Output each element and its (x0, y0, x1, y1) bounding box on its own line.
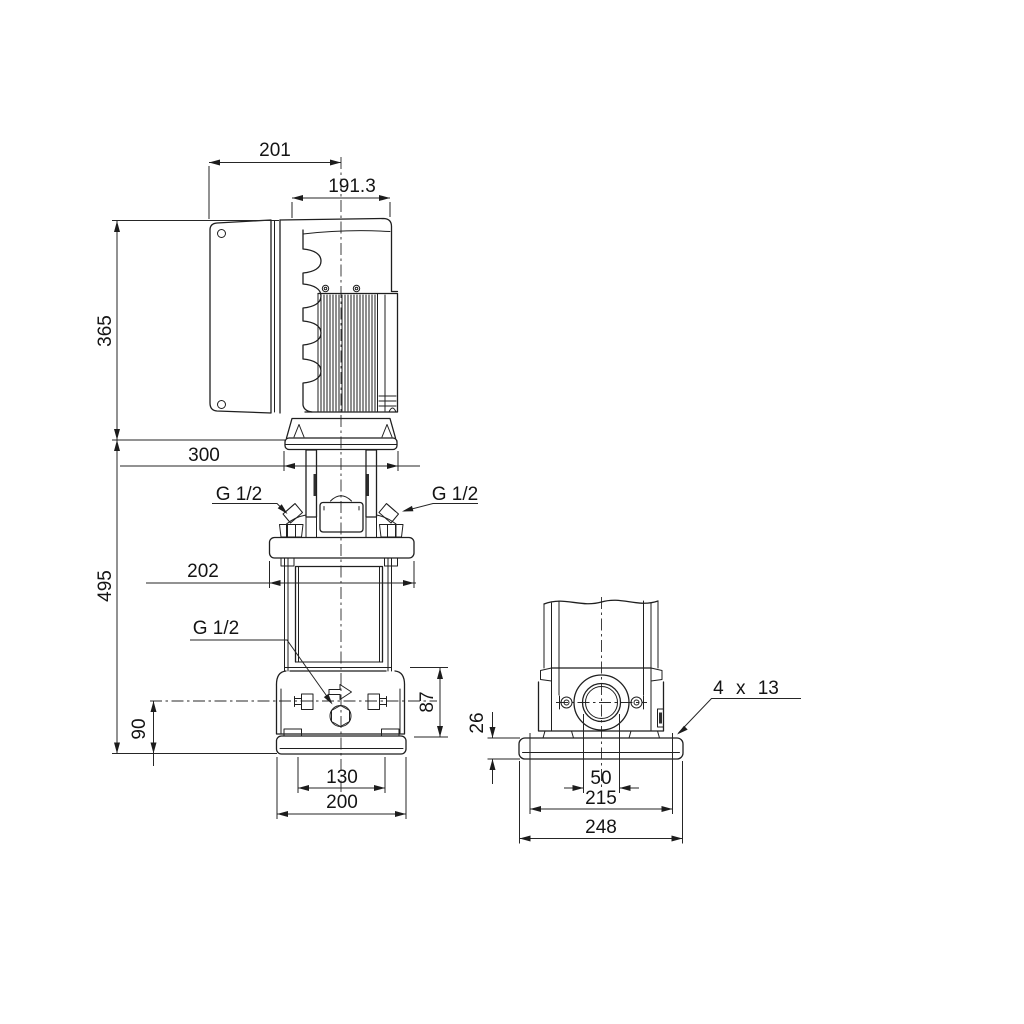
dim-130-label: 130 (326, 767, 358, 788)
dim-90: 90 (129, 701, 157, 767)
g12-drain-label: G 1/2 (193, 618, 239, 639)
dim-495-label: 495 (95, 570, 116, 602)
front-view (519, 597, 683, 791)
dim-248-label: 248 (585, 817, 617, 838)
motor (280, 219, 398, 413)
dim-200-label: 200 (326, 792, 358, 813)
holes-label: 4 x 13 (713, 678, 779, 699)
drain-plug (330, 706, 351, 727)
coupling (320, 503, 363, 533)
label-g12-right: G 1/2 (402, 484, 478, 512)
dim-201-label: 201 (259, 140, 291, 161)
dimensional-drawing-page: 201 191.3 365 495 300 (0, 0, 1024, 1024)
flow-direction-arrow (329, 685, 352, 700)
control-box (210, 220, 271, 413)
dim-26: 26 (467, 712, 520, 784)
screw-hole-top (218, 230, 226, 238)
dim-201: 201 (209, 140, 341, 219)
dim-87-label: 87 (417, 691, 438, 712)
dim-26-label: 26 (467, 712, 488, 733)
nameplate-tab (658, 709, 664, 727)
break-line (544, 600, 658, 604)
label-g12-left: G 1/2 (212, 484, 288, 514)
dim-300-label: 300 (188, 445, 220, 466)
dim-215-label: 215 (585, 788, 617, 809)
dim-87: 87 (410, 668, 448, 738)
dim-50-label: 50 (590, 768, 611, 789)
dimensions-side: 201 191.3 365 495 300 (95, 140, 478, 819)
g12-right-label: G 1/2 (432, 484, 478, 505)
pump-dimensional-drawing: 201 191.3 365 495 300 (0, 0, 1024, 1024)
dim-130: 130 (298, 757, 385, 793)
dim-202-label: 202 (187, 561, 219, 582)
pump-base-front (519, 731, 683, 759)
dim-191-3-label: 191.3 (328, 176, 376, 197)
screw-hole-bottom (218, 401, 226, 409)
drive-cover (275, 220, 391, 413)
pump-chamber (276, 671, 404, 734)
label-4x13: 4 x 13 (677, 678, 801, 735)
seal-plug-right (368, 694, 387, 710)
motor-fins (321, 295, 375, 411)
end-shield (378, 294, 397, 413)
head-flange (270, 538, 415, 559)
dim-90-label: 90 (129, 718, 150, 739)
side-view (150, 157, 437, 792)
seal-plug-left (295, 694, 314, 710)
pump-sleeve (285, 559, 392, 672)
dim-365-label: 365 (95, 315, 116, 347)
chamber-front (539, 668, 664, 731)
label-g12-drain: G 1/2 (190, 618, 333, 705)
g12-left-label: G 1/2 (216, 484, 262, 505)
dim-365: 365 (95, 221, 279, 441)
